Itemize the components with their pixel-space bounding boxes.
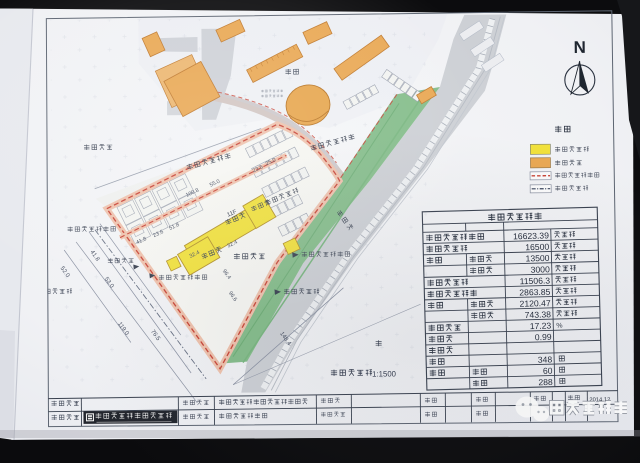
- svg-text:N: N: [573, 38, 585, 57]
